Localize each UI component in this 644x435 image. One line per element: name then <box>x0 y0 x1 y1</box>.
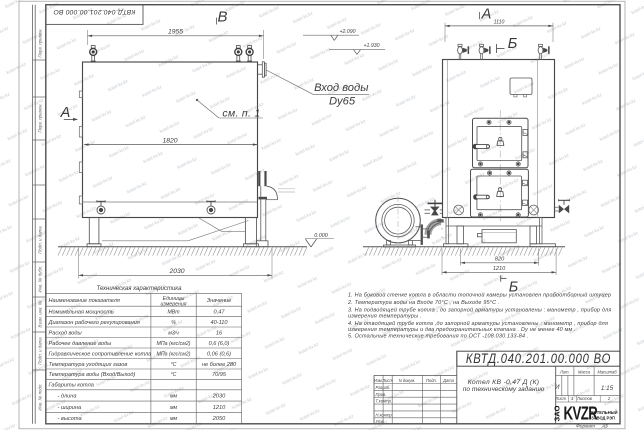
svg-text:КОТЕЛЬНЫЙ: КОТЕЛЬНЫЙ <box>591 410 617 415</box>
svg-text:2. Температура воды на Входе: 2. Температура воды на Входе 70°С , на В… <box>347 300 500 306</box>
svg-text:Т.контр.: Т.контр. <box>376 399 393 404</box>
svg-text:- высота: - высота <box>58 416 82 422</box>
svg-text:измерения температуры .: измерения температуры . <box>348 314 422 320</box>
svg-text:МВт: МВт <box>167 309 180 315</box>
svg-text:- ширина: - ширина <box>58 405 82 411</box>
svg-text:1955: 1955 <box>168 29 183 36</box>
svg-text:Формат: Формат <box>576 424 595 430</box>
svg-text:м3/ч: м3/ч <box>168 330 179 336</box>
svg-text:И: И <box>555 384 560 391</box>
svg-text:см. п. 1: см. п. 1 <box>222 108 260 120</box>
svg-text:- длина: - длина <box>58 393 77 399</box>
svg-text:Котел КВ -0,47 Д (К): Котел КВ -0,47 Д (К) <box>468 379 540 386</box>
svg-text:А3: А3 <box>601 424 608 430</box>
svg-text:Пров.: Пров. <box>376 392 387 397</box>
svg-text:Расход воды: Расход воды <box>49 330 82 336</box>
svg-text:Рабочее давление воды: Рабочее давление воды <box>49 341 112 347</box>
svg-text:70/95: 70/95 <box>212 372 227 378</box>
svg-text:5. Остальные технические треб: 5. Остальные технические требования по О… <box>348 334 529 340</box>
svg-text:Подп.: Подп. <box>426 378 437 383</box>
svg-text:А: А <box>60 105 71 121</box>
svg-text:1: 1 <box>571 396 573 401</box>
svg-text:Dy65: Dy65 <box>329 95 356 107</box>
svg-text:1210: 1210 <box>493 266 506 272</box>
svg-text:Температура уходящих газов: Температура уходящих газов <box>49 362 128 368</box>
svg-text:Диапазон рабочего регулировани: Диапазон рабочего регулирования <box>48 320 140 326</box>
svg-text:2050: 2050 <box>212 416 226 422</box>
svg-text:Н.контр.: Н.контр. <box>376 412 393 417</box>
svg-text:1110: 1110 <box>494 20 505 26</box>
svg-text:Утв.: Утв. <box>376 419 385 424</box>
svg-text:Подп. и дата: Подп. и дата <box>38 226 43 254</box>
svg-text:Вход воды: Вход воды <box>314 82 369 94</box>
svg-text:мм: мм <box>170 393 178 399</box>
svg-text:Лист: Лист <box>555 396 567 401</box>
svg-text:Лист: Лист <box>381 378 393 383</box>
svg-text:Техническая характеристика: Техническая характеристика <box>97 286 183 292</box>
svg-text:2030: 2030 <box>168 268 184 275</box>
svg-text:Номинальная мощность: Номинальная мощность <box>49 309 114 315</box>
svg-text:измерения температуры и два пр: измерения температуры и два предохраните… <box>348 327 576 333</box>
svg-text:Взам. инв. №: Взам. инв. № <box>38 300 43 327</box>
svg-text:+1.930: +1.930 <box>363 43 379 49</box>
svg-text:КВТД.040.201.00.000 ВО: КВТД.040.201.00.000 ВО <box>466 351 611 366</box>
svg-text:0.000: 0.000 <box>314 233 328 239</box>
svg-text:А: А <box>481 6 492 22</box>
svg-text:+2.090: +2.090 <box>339 29 355 35</box>
svg-text:не более 280: не более 280 <box>202 362 237 368</box>
svg-text:Инв. № подл.: Инв. № подл. <box>38 383 43 410</box>
svg-text:Гидравлическое сопротивление к: Гидравлическое сопротивление котла <box>49 351 152 357</box>
svg-text:N докум.: N докум. <box>399 378 416 383</box>
svg-text:по техническому заданию: по техническому заданию <box>463 385 545 393</box>
svg-text:Перв. примен.: Перв. примен. <box>38 28 43 57</box>
svg-text:1820: 1820 <box>162 137 177 144</box>
svg-text:измерения: измерения <box>161 301 187 307</box>
svg-text:Листов: Листов <box>576 396 593 401</box>
svg-text:Дата: Дата <box>442 378 455 383</box>
svg-text:мм: мм <box>170 416 178 422</box>
svg-text:1. На боковой стенке котла в: 1. На боковой стенке котла в области топ… <box>348 291 611 298</box>
svg-text:Перв. примен.: Перв. примен. <box>38 103 43 132</box>
svg-text:1:15: 1:15 <box>601 385 614 392</box>
svg-text:Температура воды (Вход/Выход): Температура воды (Вход/Выход) <box>49 372 136 378</box>
svg-text:2030: 2030 <box>212 393 226 399</box>
svg-text:820: 820 <box>495 257 505 263</box>
svg-text:Лит.: Лит. <box>559 369 570 374</box>
svg-text:Масса: Масса <box>578 369 591 374</box>
svg-text:МПа (кгс/см2): МПа (кгс/см2) <box>157 351 191 357</box>
svg-text:В: В <box>217 8 227 25</box>
svg-text:°С: °С <box>171 372 177 378</box>
svg-text:0,06 (0,6): 0,06 (0,6) <box>207 351 231 357</box>
svg-text:ЗАО: ЗАО <box>552 405 561 421</box>
svg-text:Масштаб: Масштаб <box>597 369 617 374</box>
svg-text:1210: 1210 <box>213 405 226 411</box>
svg-text:Разраб.: Разраб. <box>376 385 391 390</box>
svg-text:40-110: 40-110 <box>210 320 228 326</box>
svg-text:Инв. № дубл.: Инв. № дубл. <box>38 265 43 292</box>
svg-text:%: % <box>171 320 176 326</box>
svg-text:Наименование показателя: Наименование показателя <box>49 298 120 304</box>
svg-text:Б: Б <box>508 35 518 52</box>
svg-text:4. На отводящей трубе котла ,: 4. На отводящей трубе котла ,до запорной… <box>348 320 608 327</box>
svg-text:0,47: 0,47 <box>214 309 226 315</box>
svg-text:Значение: Значение <box>207 298 232 304</box>
svg-text:ЗАВОД РЭП: ЗАВОД РЭП <box>591 415 615 420</box>
svg-text:МПа (кгс/см2): МПа (кгс/см2) <box>157 341 191 347</box>
svg-text:16: 16 <box>216 330 223 336</box>
svg-text:КВТД.040.201.00.000 ВО: КВТД.040.201.00.000 ВО <box>53 8 135 15</box>
svg-text:°С: °С <box>171 362 177 368</box>
svg-text:Габариты котла: Габариты котла <box>49 383 94 389</box>
svg-text:0,6 (6,0): 0,6 (6,0) <box>209 341 230 347</box>
svg-text:3. На подводящей трубе котла: 3. На подводящей трубе котла , до запорн… <box>348 306 611 313</box>
svg-text:мм: мм <box>170 405 178 411</box>
svg-text:Подп. и дата: Подп. и дата <box>38 337 43 365</box>
